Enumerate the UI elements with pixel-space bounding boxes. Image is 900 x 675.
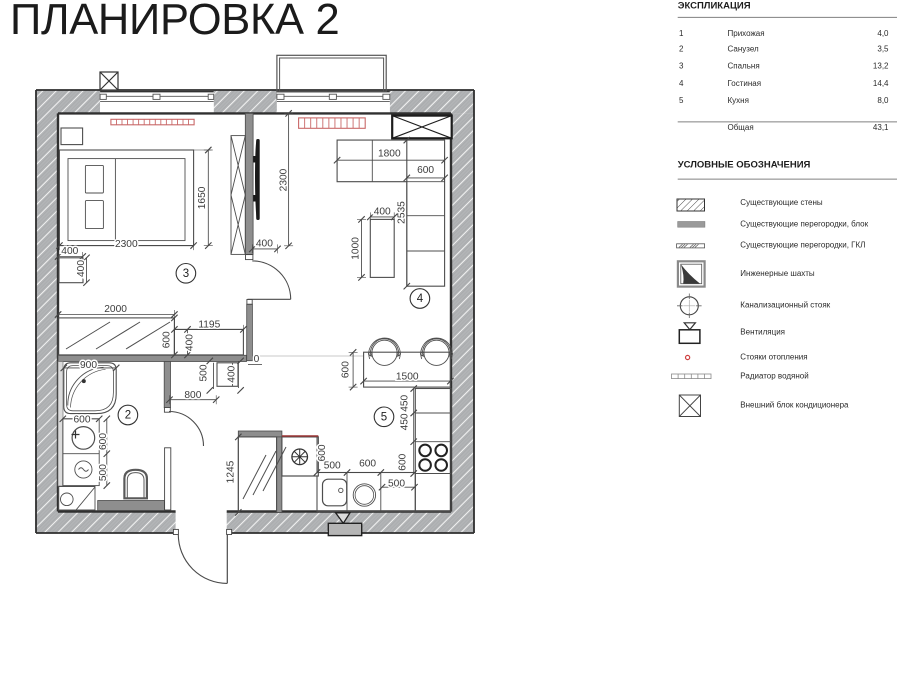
svg-text:2300: 2300 <box>115 239 138 250</box>
svg-text:ПЛАНИРОВКА 2: ПЛАНИРОВКА 2 <box>10 0 339 44</box>
svg-text:1000: 1000 <box>351 237 362 260</box>
svg-text:3,5: 3,5 <box>877 45 889 54</box>
svg-text:4: 4 <box>679 79 684 88</box>
svg-text:УСЛОВНЫЕ ОБОЗНАЧЕНИЯ: УСЛОВНЫЕ ОБОЗНАЧЕНИЯ <box>678 160 811 171</box>
svg-text:500: 500 <box>388 479 405 490</box>
svg-text:2: 2 <box>125 410 131 422</box>
svg-text:Внешний блок кондиционера: Внешний блок кондиционера <box>740 400 849 409</box>
svg-text:3: 3 <box>679 62 684 71</box>
svg-text:1800: 1800 <box>378 149 401 160</box>
svg-text:8,0: 8,0 <box>877 96 889 105</box>
svg-text:1500: 1500 <box>396 372 419 383</box>
svg-text:1: 1 <box>679 29 684 38</box>
svg-text:2300: 2300 <box>278 168 289 191</box>
svg-text:2000: 2000 <box>104 304 127 315</box>
svg-text:500: 500 <box>199 364 210 381</box>
svg-text:Спальня: Спальня <box>728 62 760 71</box>
svg-text:400: 400 <box>227 365 238 382</box>
svg-text:400: 400 <box>76 260 87 277</box>
svg-text:800: 800 <box>184 390 201 401</box>
svg-text:14,4: 14,4 <box>873 79 889 88</box>
svg-text:4: 4 <box>417 293 424 305</box>
svg-text:Гостиная: Гостиная <box>728 79 762 88</box>
svg-text:600: 600 <box>74 414 91 425</box>
svg-text:1195: 1195 <box>198 320 220 331</box>
svg-text:5: 5 <box>381 411 387 423</box>
svg-text:Радиатор водяной: Радиатор водяной <box>740 372 808 381</box>
svg-text:Кухня: Кухня <box>728 96 749 105</box>
svg-text:Общая: Общая <box>728 123 754 132</box>
svg-text:1245: 1245 <box>226 460 237 483</box>
svg-text:Санузел: Санузел <box>728 45 759 54</box>
svg-text:5: 5 <box>679 96 684 105</box>
svg-text:ЭКСПЛИКАЦИЯ: ЭКСПЛИКАЦИЯ <box>678 0 751 11</box>
svg-text:400: 400 <box>61 246 78 257</box>
svg-text:4,0: 4,0 <box>877 29 889 38</box>
svg-text:900: 900 <box>80 360 97 371</box>
svg-text:600: 600 <box>417 165 434 176</box>
svg-text:2535: 2535 <box>396 201 407 224</box>
svg-text:43,1: 43,1 <box>873 123 889 132</box>
svg-text:0: 0 <box>254 354 260 365</box>
svg-text:500: 500 <box>98 464 109 481</box>
svg-text:600: 600 <box>98 433 109 450</box>
svg-text:400: 400 <box>185 334 196 351</box>
svg-text:600: 600 <box>340 361 351 378</box>
svg-text:Канализационный стояк: Канализационный стояк <box>740 300 830 309</box>
svg-text:13,2: 13,2 <box>873 62 889 71</box>
svg-text:600: 600 <box>317 444 328 461</box>
svg-text:Существующие стены: Существующие стены <box>740 198 823 207</box>
svg-text:400: 400 <box>374 207 391 218</box>
svg-text:400: 400 <box>256 239 273 250</box>
svg-text:600: 600 <box>397 453 408 470</box>
svg-text:Стояки отопления: Стояки отопления <box>740 352 807 361</box>
svg-text:600: 600 <box>359 458 376 469</box>
svg-text:450: 450 <box>400 413 411 430</box>
svg-text:Инженерные шахты: Инженерные шахты <box>740 269 815 278</box>
svg-text:Прихожая: Прихожая <box>728 29 765 38</box>
svg-text:2: 2 <box>679 45 684 54</box>
svg-text:Существующие перегородки, блок: Существующие перегородки, блок <box>740 219 868 228</box>
svg-text:Существующие перегородки, ГКЛ: Существующие перегородки, ГКЛ <box>740 241 865 250</box>
svg-text:450: 450 <box>400 394 411 411</box>
svg-text:600: 600 <box>161 331 172 348</box>
svg-text:3: 3 <box>183 268 189 280</box>
svg-text:1650: 1650 <box>197 186 208 209</box>
svg-text:Вентиляция: Вентиляция <box>740 327 785 336</box>
